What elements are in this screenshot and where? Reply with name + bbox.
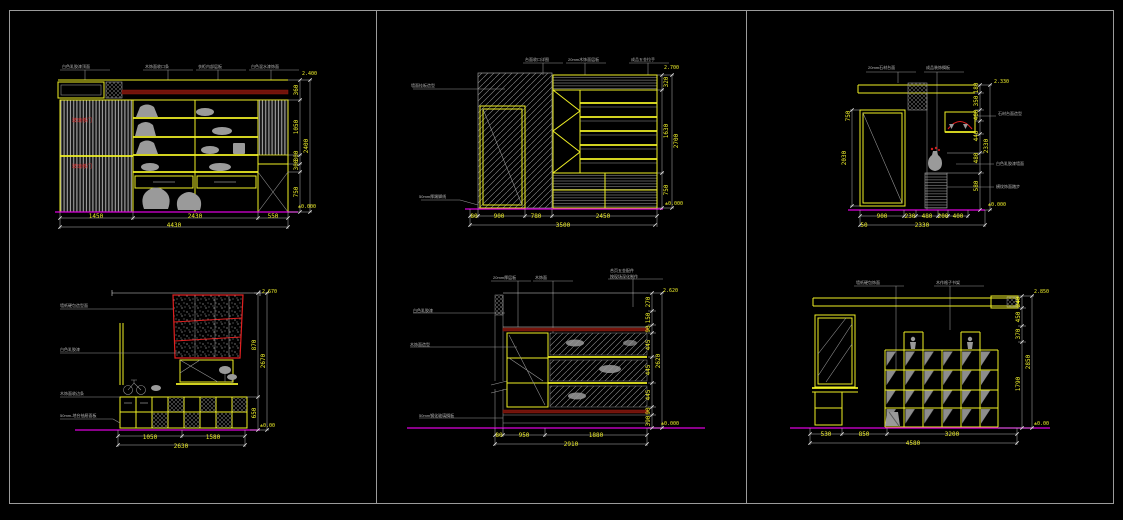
column-divider-2 — [746, 10, 747, 504]
annotation: 白色乳胶漆 — [60, 347, 80, 352]
dim-total: 2850 — [1026, 355, 1032, 369]
red-annotation: 玻璃移门 — [72, 119, 92, 124]
elevation-view-2: 台面收口详图 20mm木饰面层板 成品五金拉手 墙面挂板造型 50mm厚踢脚线 … — [405, 48, 705, 240]
dim-total: 2910 — [564, 442, 578, 448]
annotation: 50mm钢化玻璃搁板 — [419, 413, 454, 418]
dim-label: 150 — [646, 313, 652, 324]
dim-label: 850 — [859, 432, 870, 438]
annotation: 衣柜内部层板 — [198, 64, 222, 69]
elevation-mark: ±0.000 — [661, 422, 679, 427]
dim-label: 1050 — [294, 120, 300, 134]
dim-total: 3500 — [556, 223, 570, 229]
elevation-mark: 2.620 — [663, 289, 678, 294]
dim-label: 460 — [974, 110, 980, 121]
dim-label: 350 — [974, 96, 980, 107]
elevation-mark: 2.670 — [262, 290, 277, 295]
dim-label: 360 — [294, 85, 300, 96]
dim-total: 2330 — [984, 139, 990, 153]
dim-label: 480 — [974, 153, 980, 164]
dim-label: 1630 — [664, 124, 670, 138]
dim-total: 4430 — [167, 223, 181, 229]
elevation-mark: 2.330 — [994, 80, 1009, 85]
dim-total: 2630 — [174, 444, 188, 450]
dim-label: 50 — [860, 223, 867, 229]
annotation: 成品五金拉手 — [631, 57, 655, 62]
dim-label: 550 — [268, 214, 279, 220]
dim-label: 300 — [294, 160, 300, 171]
annotation: 白色乳胶漆墙面 — [996, 161, 1024, 166]
dim-label: 1050 — [143, 435, 157, 441]
annotation: 50mm厚踢脚线 — [419, 194, 446, 199]
annotation: 按现场深化制作 — [610, 274, 638, 279]
annotation: 木饰面造型 — [410, 342, 430, 347]
annotation: 木作格子书架 — [936, 280, 960, 285]
annotation: 墙面挂板造型 — [411, 83, 435, 88]
dim-total: 2620 — [656, 354, 662, 368]
annotation: 白色乳胶漆顶面 — [62, 64, 90, 69]
dim-label: 1790 — [1016, 377, 1022, 391]
dim-label: 1580 — [206, 435, 220, 441]
annotation: 白色乳胶漆 — [413, 308, 433, 313]
dim-label: 2430 — [188, 214, 202, 220]
dim-label: 2450 — [596, 214, 610, 220]
dim-label: 450 — [1016, 312, 1022, 323]
elevation-mark: 2.700 — [664, 66, 679, 71]
panel2-linework — [405, 48, 705, 240]
dim-label: 230 — [905, 214, 916, 220]
annotation: 墙纸硬包造型面 — [60, 303, 88, 308]
elevation-view-3: 20mm石材台面 成品装饰搁板 石材台面造型 白色乳胶漆墙面 横纹饰面踏步 75… — [838, 58, 1078, 240]
dim-label: 370 — [1016, 329, 1022, 340]
dim-label: 1450 — [89, 214, 103, 220]
dim-total: 2330 — [915, 223, 929, 229]
panel4-linework — [58, 278, 293, 463]
annotation: 木饰面收口条 — [145, 64, 169, 69]
annotation: 50mm-地台抽屉面板 — [60, 413, 96, 418]
elevation-view-1: 白色乳胶漆顶面 木饰面收口条 衣柜内部层板 白色混水漆饰面 玻璃移门 玻璃移门 … — [50, 55, 340, 245]
annotation: 20mm木饰面层板 — [568, 57, 599, 62]
annotation: 木饰面 — [535, 275, 547, 280]
dim-total: 4580 — [906, 441, 920, 447]
elevation-mark: ±0.000 — [298, 205, 316, 210]
dim-label: 200 — [938, 214, 949, 220]
dim-label: 270 — [646, 297, 652, 308]
dim-label: 3200 — [945, 432, 959, 438]
dim-label: 445 — [646, 365, 652, 376]
elevation-view-5: 20mm厚层板 木饰面 合页五金配件 按现场深化制作 白色乳胶漆 木饰面造型 5… — [405, 263, 710, 458]
elevation-mark: ±0.000 — [665, 202, 683, 207]
dim-label: 90 — [646, 407, 652, 414]
dim-total: 2670 — [261, 354, 267, 368]
dim-label: 445 — [646, 390, 652, 401]
dim-label: 750 — [664, 185, 670, 196]
dim-label: 950 — [519, 433, 530, 439]
dim-label: 400 — [953, 214, 964, 220]
dim-label: 750 — [846, 111, 852, 122]
dim-label: 480 — [922, 214, 933, 220]
elevation-mark: ±0.00 — [1034, 422, 1049, 427]
elevation-mark: 2.850 — [1034, 290, 1049, 295]
column-divider-1 — [376, 10, 377, 504]
annotation: 合页五金配件 — [610, 268, 634, 273]
annotation: 20mm石材台面 — [868, 65, 895, 70]
annotation: 白色混水漆饰面 — [251, 64, 279, 69]
dim-label: 650 — [252, 408, 258, 419]
dim-label: 445 — [646, 340, 652, 351]
dim-total: 2700 — [674, 134, 680, 148]
dim-label: 390 — [646, 416, 652, 427]
annotation: 墙纸硬包饰面 — [856, 280, 880, 285]
dim-label: 80 — [470, 214, 477, 220]
dim-label: 440 — [974, 131, 980, 142]
dim-label: 1880 — [589, 433, 603, 439]
annotation: 成品装饰搁板 — [926, 65, 950, 70]
dim-label: 780 — [531, 214, 542, 220]
dim-label: 90 — [646, 325, 652, 332]
dim-label: 750 — [294, 187, 300, 198]
red-annotation: 玻璃移门 — [72, 165, 92, 170]
elevation-mark: 2.400 — [302, 72, 317, 77]
dim-label: 320 — [664, 77, 670, 88]
dim-label: 530 — [821, 432, 832, 438]
dim-label: 900 — [877, 214, 888, 220]
elevation-view-6: 墙纸硬包饰面 木作格子书架 530 850 3200 4580 240 450 … — [788, 276, 1073, 458]
dim-label: 900 — [494, 214, 505, 220]
annotation: 横纹饰面踏步 — [996, 184, 1020, 189]
dim-label: 2030 — [842, 151, 848, 165]
elevation-mark: ±0.00 — [260, 424, 275, 429]
dim-label: 80 — [495, 433, 502, 439]
annotation: 台面收口详图 — [525, 57, 549, 62]
dim-total: 2400 — [304, 139, 310, 153]
elevation-view-4: 墙纸硬包造型面 白色乳胶漆 木饰面收边条 50mm-地台抽屉面板 1050 15… — [58, 278, 293, 463]
dim-label: 180 — [974, 83, 980, 94]
elevation-mark: ±0.000 — [988, 203, 1006, 208]
annotation: 20mm厚层板 — [493, 275, 516, 280]
annotation: 石材台面造型 — [998, 111, 1022, 116]
annotation: 木饰面收边条 — [60, 391, 84, 396]
dim-label: 870 — [252, 340, 258, 351]
dim-label: 240 — [1016, 297, 1022, 308]
dim-label: 580 — [974, 181, 980, 192]
